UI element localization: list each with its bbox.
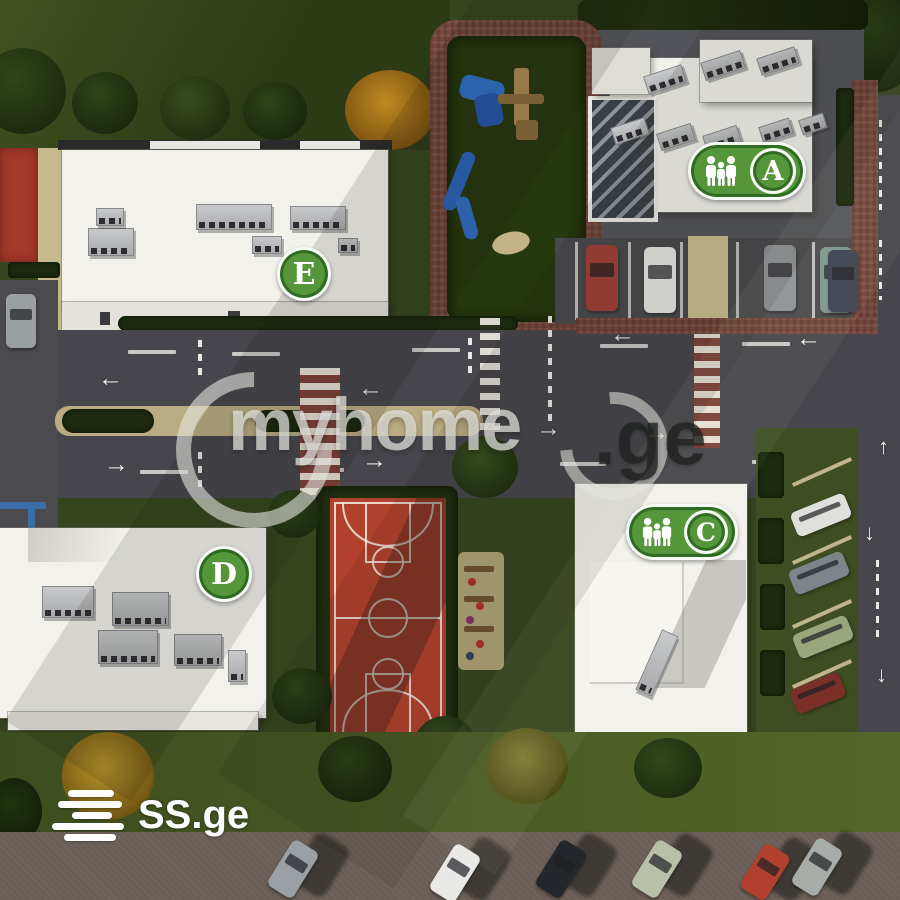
person <box>466 652 474 660</box>
hedge-column <box>836 88 854 206</box>
rooftop-vent <box>338 238 358 253</box>
crosswalk <box>480 318 500 434</box>
rooftop-vent <box>112 592 169 626</box>
left-red-court <box>0 148 38 262</box>
building-d-badge[interactable]: D <box>196 546 252 602</box>
building-c-badge[interactable]: C <box>626 504 738 560</box>
rooftop-vent <box>96 208 124 226</box>
hedge-block <box>760 650 785 696</box>
road-arrow-right-icon: → <box>536 416 561 441</box>
parked-car-red <box>586 245 618 311</box>
tree <box>272 668 332 724</box>
olive-tree <box>486 728 568 804</box>
family-icon <box>700 154 744 188</box>
stop-line-ticks <box>198 340 202 380</box>
hedge-block <box>758 518 784 564</box>
bench <box>464 566 494 572</box>
hedge-row <box>118 316 518 331</box>
lane-marking <box>128 350 176 354</box>
crosswalk <box>300 368 340 496</box>
building-e-label: E <box>293 257 316 292</box>
rooftop-vent <box>98 630 158 664</box>
road-arrow-right-icon: → <box>104 452 129 477</box>
rooftop-vent <box>252 236 282 254</box>
hedge-block <box>760 584 785 630</box>
tree <box>318 736 392 802</box>
rooftop-vent <box>42 586 94 618</box>
road-arrow-right-icon: → <box>362 448 387 473</box>
person <box>476 640 484 648</box>
lane-marking <box>412 348 460 352</box>
ssge-logo: SS.ge <box>52 790 249 841</box>
brick-path-bottom <box>576 318 876 334</box>
crosswalk <box>694 316 720 448</box>
parked-car-dark <box>828 250 858 312</box>
stall-line <box>628 242 631 320</box>
basketball-court <box>330 498 446 738</box>
dark-tree-row <box>578 0 868 30</box>
building-a-badge-circle: A <box>750 148 796 194</box>
rooftop-vent <box>290 206 346 230</box>
building-e-badge[interactable]: E <box>277 247 331 301</box>
rooftop-vent <box>174 634 222 666</box>
ssge-bars-icon <box>52 790 124 841</box>
building-d-roof-slope <box>28 528 124 562</box>
tree <box>268 490 320 538</box>
person <box>466 616 474 624</box>
stall-line <box>680 242 683 320</box>
building-e-roofline-light <box>300 141 360 149</box>
tree <box>452 436 518 498</box>
building-d-lower-tier <box>8 712 258 730</box>
right-road-dashes <box>879 240 882 300</box>
ssge-logo-text: SS.ge <box>138 793 249 838</box>
rooftop-vent <box>196 204 272 230</box>
hedge <box>8 262 60 278</box>
stop-line-ticks <box>198 452 202 492</box>
parked-car-white <box>644 247 676 313</box>
road-arrow-down-icon: ↓ <box>876 664 887 686</box>
rooftop-vent <box>88 228 134 256</box>
stall-line <box>736 242 739 320</box>
tree <box>634 738 702 798</box>
playground-climber-frame <box>498 94 544 104</box>
lane-marking <box>560 462 606 466</box>
building-a-glass-wing <box>588 96 658 222</box>
autumn-tree <box>345 70 435 150</box>
stall-line <box>575 242 578 320</box>
stop-line-ticks <box>468 338 472 378</box>
playground-climber-frame <box>516 120 538 140</box>
dashed-line <box>548 316 552 428</box>
site-plan-render: A E <box>0 0 900 900</box>
lane-marking <box>232 352 280 356</box>
road-arrow-down-icon: ↓ <box>864 522 875 544</box>
building-a-label: A <box>763 156 784 187</box>
court-markings <box>330 498 446 738</box>
tree <box>160 76 230 140</box>
building-e-roofline-light <box>150 141 260 149</box>
building-a-badge[interactable]: A <box>688 142 806 200</box>
hedge-block <box>758 452 784 498</box>
right-road-dashes <box>876 560 879 640</box>
parked-car-gray <box>764 245 796 311</box>
building-e-facade-notch <box>100 312 110 325</box>
road-arrow-left-icon: ← <box>98 366 123 391</box>
median-hedge <box>62 409 154 433</box>
tree <box>243 82 307 140</box>
parked-car-gray <box>6 294 36 348</box>
building-c-badge-circle: C <box>684 510 728 554</box>
family-icon <box>637 516 679 548</box>
bench <box>464 626 494 632</box>
lane-marking <box>140 470 188 474</box>
building-c-label: C <box>696 518 716 547</box>
building-a-roof-corner <box>592 48 650 94</box>
road-arrow-right-icon: → <box>644 420 669 445</box>
rooftop-vent <box>228 650 246 682</box>
road-arrow-left-icon: ← <box>358 376 383 401</box>
blue-road-marking <box>0 502 46 509</box>
person <box>476 602 484 610</box>
lane-marking <box>742 342 790 346</box>
stall-line <box>812 242 815 320</box>
building-d-label: D <box>211 557 237 592</box>
road-arrow-up-icon: ↑ <box>878 436 889 458</box>
tree <box>72 72 138 134</box>
person <box>468 578 476 586</box>
right-road-dashes <box>879 120 882 210</box>
